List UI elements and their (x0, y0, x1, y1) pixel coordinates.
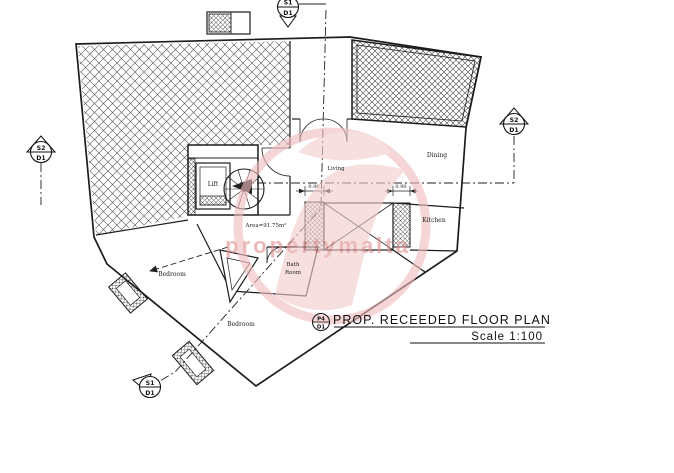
marker-top-upper: S1 (284, 0, 293, 7)
marker-left-upper: S2 (37, 145, 46, 152)
marker-bottom-lower: D1 (145, 390, 154, 397)
label-bedroom-bottom: Bedroom (227, 321, 255, 328)
floor-plan-sheet: 0.90 0.90 propertymalta Lift Area=91.75m… (0, 0, 674, 473)
floor-plan-drawing: 0.90 0.90 propertymalta Lift Area=91.75m… (0, 0, 674, 473)
label-bedroom-left: Bedroom (158, 271, 186, 278)
title-ref-upper: P4 (317, 317, 325, 323)
marker-bottom-upper: S1 (146, 380, 155, 387)
watermark-text: propertymalta (225, 233, 411, 258)
marker-right-upper: S2 (510, 117, 519, 124)
marker-right-lower: D1 (509, 127, 518, 134)
label-lift: Lift (208, 181, 219, 188)
label-bath-2: Room (285, 270, 302, 276)
drawing-title: PROP. RECEEDED FLOOR PLAN (333, 313, 551, 327)
dim-label-right: 0.90 (395, 184, 406, 190)
label-dining: Dining (427, 152, 447, 159)
label-living: Living (327, 166, 345, 172)
marker-top-lower: D1 (283, 10, 292, 17)
label-kitchen: Kitchen (422, 217, 446, 224)
label-area: Area=91.75m² (245, 222, 287, 229)
label-bath-1: Bath (286, 262, 300, 268)
title-ref-lower: D1 (317, 325, 325, 331)
marker-left-lower: D1 (36, 155, 45, 162)
drawing-scale: Scale 1:100 (471, 331, 543, 343)
